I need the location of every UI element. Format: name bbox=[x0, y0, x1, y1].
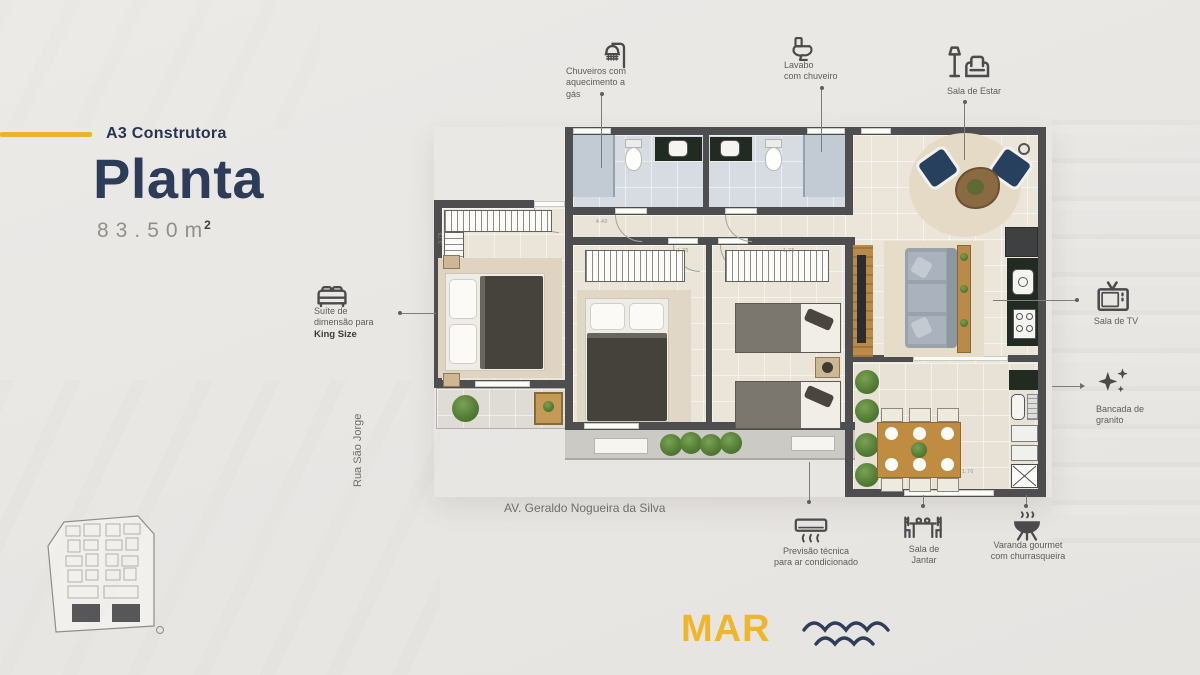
planter-bush-4 bbox=[855, 463, 879, 487]
console-plant-1 bbox=[960, 253, 968, 261]
dining-chair-bottom-1 bbox=[881, 478, 903, 492]
brand-accent-line bbox=[0, 132, 92, 137]
wall-bedroom-divider bbox=[706, 245, 712, 422]
gourmet-future-appliance bbox=[1011, 464, 1038, 488]
varanda-callout-label: Varanda gourmet com churrasqueira bbox=[978, 540, 1078, 563]
gourmet-cabinet-1 bbox=[1011, 425, 1038, 442]
tv-leader-dot bbox=[1075, 298, 1079, 302]
bedroom2-window bbox=[584, 423, 639, 429]
dining-chair-top-1 bbox=[881, 408, 903, 422]
balcony-plant-4 bbox=[720, 432, 742, 454]
suite-leader-line bbox=[402, 313, 436, 314]
x-mark-icon bbox=[1012, 465, 1037, 487]
waves-icon bbox=[800, 612, 902, 656]
page-title: Planta bbox=[93, 146, 264, 211]
estar-floor-lamp bbox=[1018, 143, 1030, 155]
bath2-shower-box bbox=[803, 135, 845, 197]
bancada-callout-label: Bancada de granito bbox=[1096, 404, 1168, 427]
wall-bath-bottom bbox=[565, 207, 845, 215]
bedroom2-door bbox=[668, 238, 698, 244]
burner-1 bbox=[1016, 313, 1023, 320]
bedroom3-lamp bbox=[822, 362, 833, 373]
shower-leader-line bbox=[601, 96, 602, 168]
planter-bush-3 bbox=[855, 433, 879, 457]
gourmet-counter bbox=[1009, 370, 1038, 390]
bath1-sink bbox=[668, 140, 688, 157]
site-key-plan bbox=[40, 512, 182, 644]
sea-label: MAR bbox=[681, 608, 771, 651]
plate-3 bbox=[941, 427, 954, 440]
tv-callout-label: Sala de TV bbox=[1086, 316, 1146, 327]
suite-callout-bold-label: King Size bbox=[314, 329, 394, 340]
balcony-bench-2 bbox=[791, 436, 835, 451]
bath2-vent bbox=[807, 128, 845, 134]
bath2-toilet bbox=[765, 147, 782, 171]
sofa-console bbox=[957, 245, 971, 353]
sofa-back bbox=[947, 248, 957, 348]
area-unit: m bbox=[185, 219, 205, 242]
company-name: A3 Construtora bbox=[106, 125, 227, 143]
plate-1 bbox=[885, 427, 898, 440]
sofa-cushion-2 bbox=[907, 283, 947, 313]
kitchen-sink-bowl bbox=[1018, 277, 1028, 287]
jantar-callout-label: Sala de Jantar bbox=[898, 544, 950, 567]
burner-4 bbox=[1026, 325, 1033, 332]
lavabo-leader-line bbox=[821, 90, 822, 152]
street-label-left: Rua São Jorge bbox=[352, 357, 364, 487]
street-label-bottom: AV. Geraldo Nogueira da Silva bbox=[504, 501, 665, 515]
suite-nightstand-1 bbox=[443, 255, 460, 269]
gourmet-sink bbox=[1011, 394, 1025, 420]
jantar-leader-dot bbox=[921, 504, 925, 508]
background-building-texture bbox=[1052, 120, 1200, 560]
ac-leader-line bbox=[809, 462, 810, 500]
fridge bbox=[1005, 227, 1038, 257]
balcony-plant-3 bbox=[700, 434, 722, 456]
area-number: 83.50 bbox=[97, 219, 185, 242]
sparkles-icon bbox=[1094, 366, 1132, 402]
suite-door bbox=[534, 201, 565, 207]
bedroom3-closet bbox=[725, 250, 829, 282]
air-conditioner-icon bbox=[791, 514, 831, 546]
suite-duvet bbox=[480, 276, 543, 369]
dim-suite: 3.75 bbox=[438, 232, 444, 244]
bath2-sink bbox=[720, 140, 740, 157]
dining-centerpiece-plant bbox=[911, 442, 927, 458]
dim-hall: 4.40 bbox=[596, 219, 608, 225]
wall-gourmet-left bbox=[845, 430, 853, 497]
flyer: A3 Construtora Planta 83.50m2 bbox=[0, 0, 1200, 675]
bath1-shower-box bbox=[573, 135, 615, 197]
shower-callout-label: Chuveiros com aquecimento a gás bbox=[566, 66, 652, 100]
dim-varanda: 1.70 bbox=[962, 469, 974, 475]
planter-bush-2 bbox=[855, 399, 879, 423]
suite-nightstand-2 bbox=[443, 373, 460, 387]
tv-leader-line bbox=[993, 300, 1077, 301]
dining-chair-bottom-3 bbox=[937, 478, 959, 492]
bath1-toilet bbox=[625, 147, 642, 171]
bath2-door bbox=[725, 208, 757, 214]
bancada-leader-arrow bbox=[1080, 383, 1085, 389]
floor-plan: 4.40 3.75 1.75 1.75 1.70 bbox=[434, 127, 1052, 497]
balcony-plant-1 bbox=[660, 434, 682, 456]
bath1-door bbox=[615, 208, 647, 214]
bedroom2-closet bbox=[585, 250, 685, 282]
dining-chair-top-2 bbox=[909, 408, 931, 422]
balcony-plant-2 bbox=[680, 432, 702, 454]
wall-mid-lower bbox=[845, 245, 853, 430]
wall-suite-top bbox=[434, 200, 534, 208]
estar-callout-label: Sala de Estar bbox=[936, 86, 1012, 97]
burner-2 bbox=[1026, 313, 1033, 320]
suite-balcony-plant bbox=[452, 395, 479, 422]
suite-pillow-2 bbox=[449, 324, 477, 364]
tv-icon bbox=[1092, 280, 1136, 314]
wall-bath-divider bbox=[703, 135, 709, 207]
burner-3 bbox=[1016, 325, 1023, 332]
dining-chair-top-3 bbox=[937, 408, 959, 422]
lavabo-callout-label: Lavabo com chuveiro bbox=[784, 60, 854, 83]
estar-table-plant bbox=[967, 179, 984, 195]
dim-bedroom3: 1.75 bbox=[783, 248, 795, 254]
armchair-lamp-icon bbox=[943, 40, 993, 82]
plate-5 bbox=[913, 458, 926, 471]
suite-callout-label: Suíte de dimensão para bbox=[314, 306, 394, 329]
suite-balcony-table-plant bbox=[543, 401, 554, 412]
ac-leader-dot bbox=[807, 500, 811, 504]
suite-callout: Suíte de dimensão para King Size bbox=[314, 306, 394, 340]
area-value: 83.50m2 bbox=[97, 218, 211, 243]
bedroom2-duvet bbox=[587, 333, 667, 421]
churrasqueira-grill bbox=[1027, 394, 1038, 420]
estar-leader-line bbox=[964, 104, 965, 160]
wall-right bbox=[1038, 127, 1046, 497]
dining-table-icon bbox=[901, 510, 945, 542]
console-plant-3 bbox=[960, 319, 968, 327]
ac-callout-label: Previsão técnica para ar condicionado bbox=[766, 546, 866, 569]
tv-screen bbox=[857, 255, 866, 343]
balcony-bench-1 bbox=[594, 438, 648, 454]
bedroom2-pillow-1 bbox=[590, 303, 625, 330]
suite-pillow-1 bbox=[449, 279, 477, 319]
wall-bedrooms-top bbox=[565, 237, 855, 245]
planter-bush-1 bbox=[855, 370, 879, 394]
dining-chair-bottom-2 bbox=[909, 478, 931, 492]
background-palm-texture bbox=[0, 0, 320, 130]
bath1-vent bbox=[573, 128, 611, 134]
plate-2 bbox=[913, 427, 926, 440]
console-plant-2 bbox=[960, 285, 968, 293]
plate-6 bbox=[941, 458, 954, 471]
grill-icon bbox=[1007, 506, 1047, 542]
wall-living-gourmet-b bbox=[1008, 355, 1038, 362]
gourmet-cabinet-2 bbox=[1011, 445, 1038, 461]
bed-icon bbox=[313, 278, 351, 308]
suite-closet-top bbox=[444, 210, 552, 232]
area-exponent: 2 bbox=[204, 218, 211, 232]
suite-balcony-door bbox=[475, 381, 530, 387]
bedroom2-pillow-2 bbox=[629, 303, 664, 330]
dim-bedroom2: 1.75 bbox=[677, 248, 689, 254]
wall-mid-upper bbox=[845, 135, 853, 215]
plate-4 bbox=[885, 458, 898, 471]
entry-door bbox=[861, 128, 891, 134]
bancada-leader-line bbox=[1052, 386, 1080, 387]
